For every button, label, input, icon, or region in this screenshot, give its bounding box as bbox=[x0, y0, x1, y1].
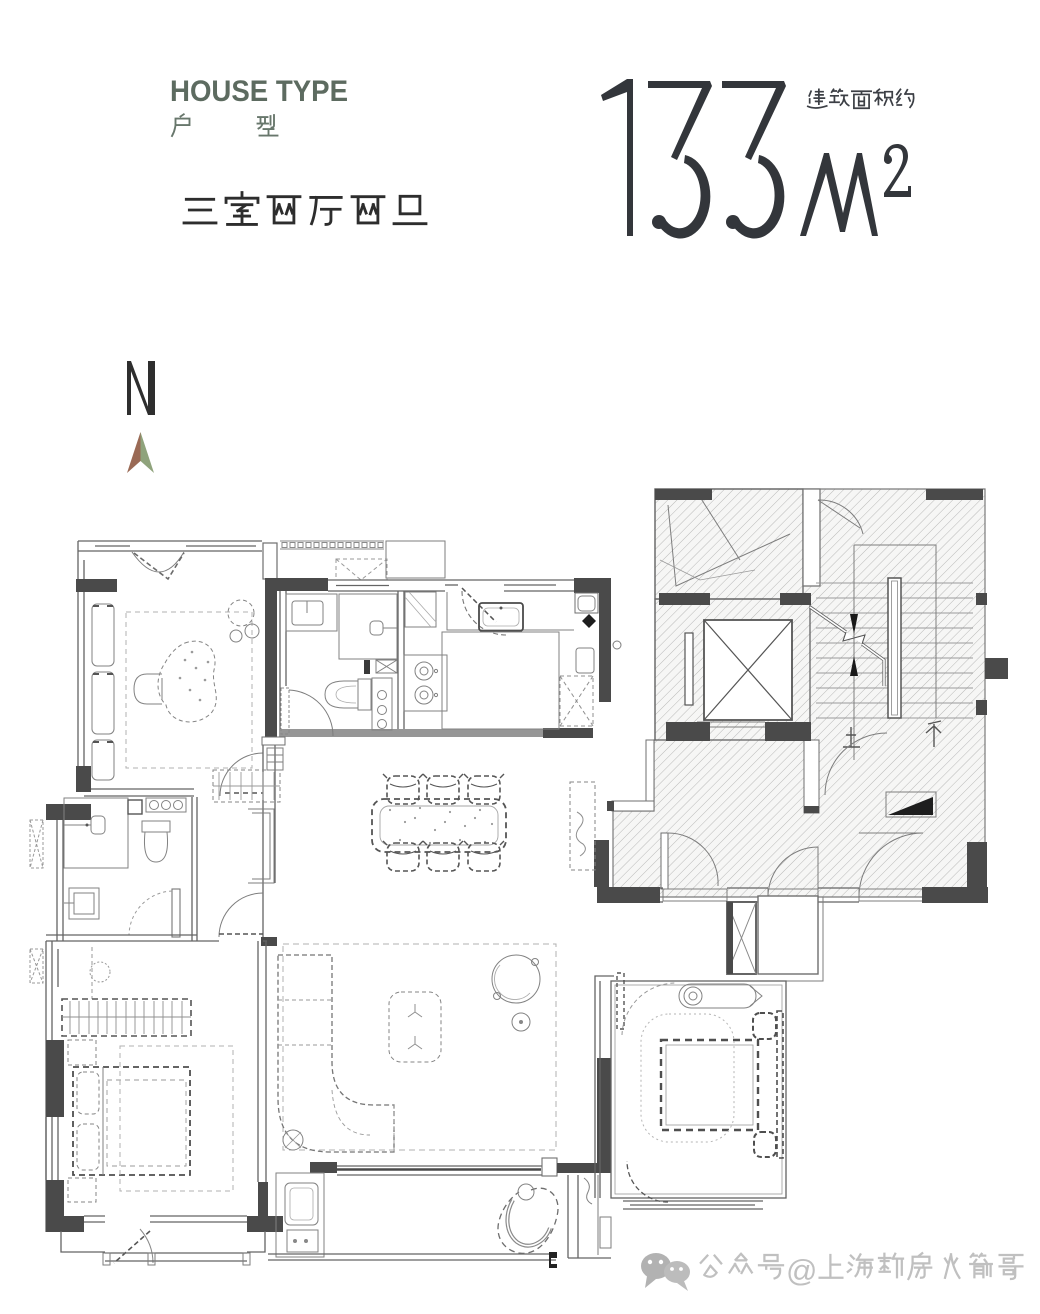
svg-text:@: @ bbox=[786, 1253, 817, 1288]
svg-text:HOUSE TYPE: HOUSE TYPE bbox=[170, 75, 348, 108]
